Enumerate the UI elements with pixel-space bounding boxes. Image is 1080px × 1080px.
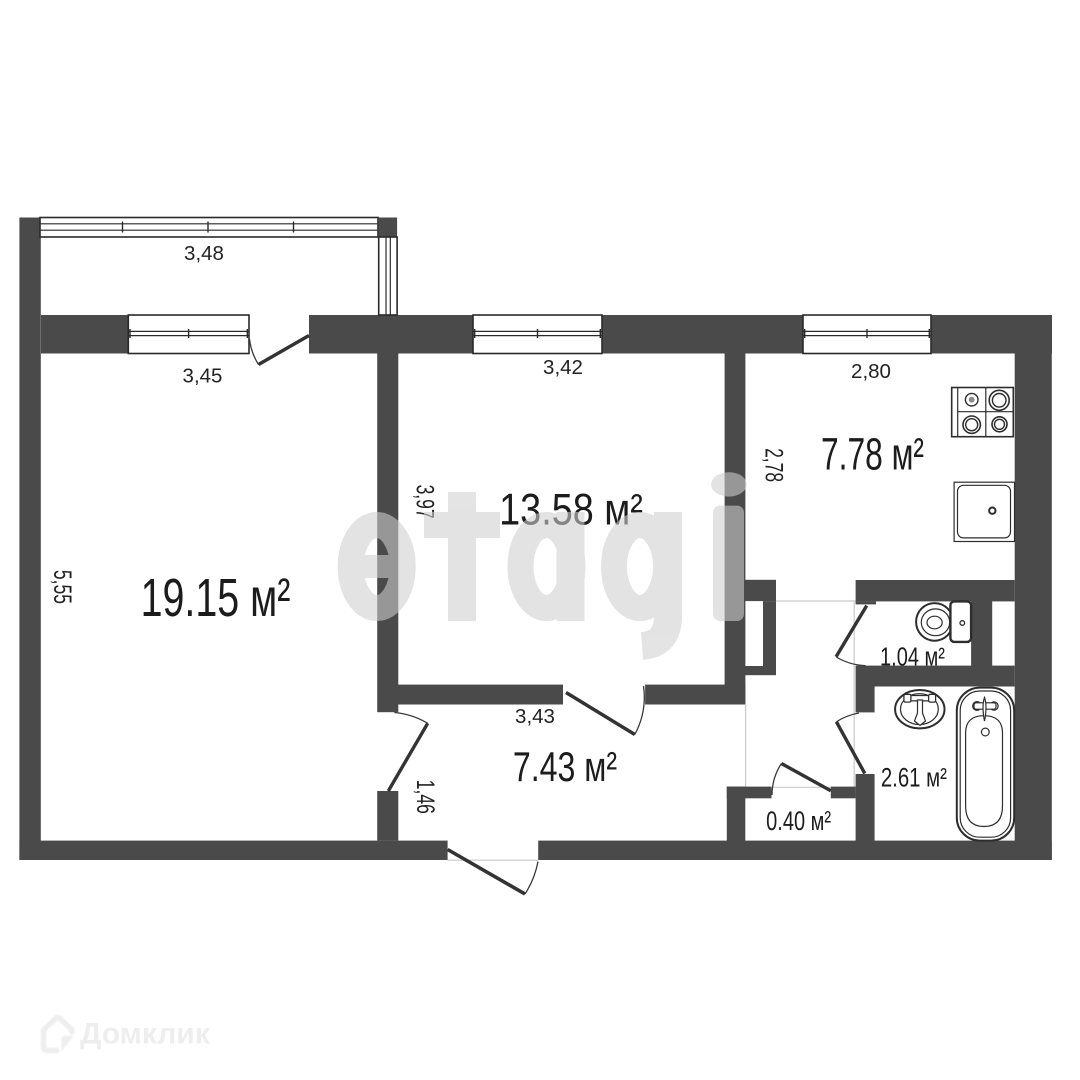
- svg-text:3,42: 3,42: [543, 356, 583, 379]
- svg-text:3,48: 3,48: [184, 242, 224, 265]
- svg-text:2,80: 2,80: [851, 360, 891, 383]
- svg-text:7.43 м²: 7.43 м²: [513, 743, 617, 790]
- svg-text:0.40 м²: 0.40 м²: [766, 806, 831, 837]
- svg-text:2,78: 2,78: [760, 448, 789, 482]
- svg-text:7.78 м²: 7.78 м²: [821, 430, 924, 480]
- svg-text:5,55: 5,55: [48, 570, 77, 604]
- svg-text:3,43: 3,43: [515, 705, 555, 728]
- svg-text:Домклик: Домклик: [80, 1017, 211, 1050]
- svg-text:19.15 м²: 19.15 м²: [141, 568, 291, 629]
- svg-text:2.61 м²: 2.61 м²: [881, 764, 947, 793]
- svg-text:1.04 м²: 1.04 м²: [880, 642, 945, 671]
- svg-text:1,46: 1,46: [411, 780, 440, 814]
- svg-text:3,45: 3,45: [183, 365, 223, 388]
